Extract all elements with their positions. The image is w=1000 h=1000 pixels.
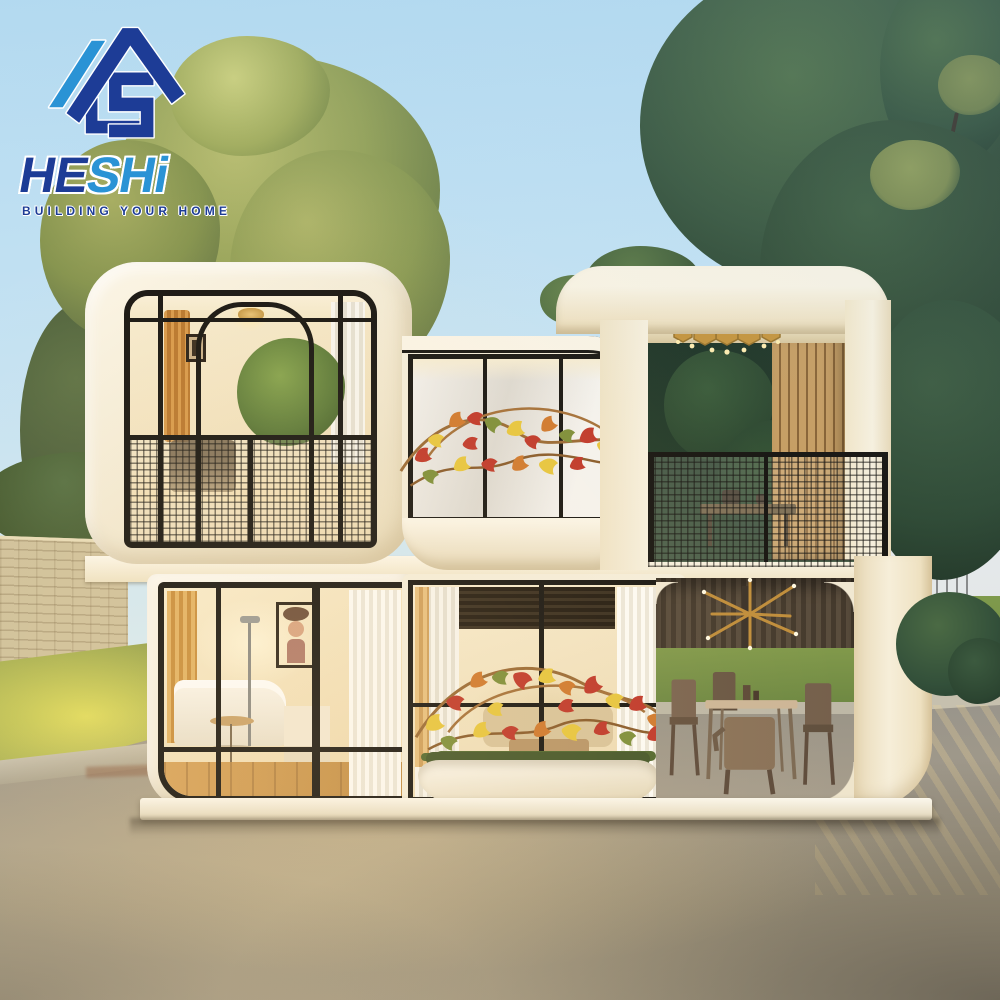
- frame-fillet: [824, 582, 854, 612]
- railing-post: [248, 440, 253, 542]
- portrait-headdress: [283, 607, 309, 621]
- portrait-artwork: [276, 602, 316, 668]
- window-rail: [164, 747, 404, 752]
- sheer-curtain: [349, 590, 401, 798]
- bush-front-right: [948, 638, 1000, 704]
- product-photo: HESHi BUILDING YOUR HOME: [0, 0, 1000, 1000]
- frame-fillet: [814, 762, 854, 802]
- heshi-logo-mark: [28, 8, 192, 140]
- portrait-face: [288, 621, 304, 637]
- window-mullion: [338, 296, 343, 542]
- ground-shadow: [130, 818, 940, 836]
- upper-left-window: [124, 290, 377, 548]
- railing-post: [764, 452, 768, 562]
- frame-fillet: [656, 582, 678, 604]
- logo-tagline: BUILDING YOUR HOME: [22, 204, 231, 218]
- arched-door-frame: [196, 302, 314, 548]
- logo-wordmark-light: SHi: [83, 147, 173, 203]
- logo-letter-s: [109, 73, 153, 138]
- base-platform: [140, 798, 932, 820]
- orange-curtain: [164, 310, 190, 442]
- autumn-vine-lower: [408, 636, 670, 768]
- logo-wordmark: HESHi: [15, 146, 173, 204]
- floor-lamp: [248, 622, 251, 746]
- portrait-figure: [287, 639, 305, 663]
- chair-front: [715, 717, 775, 794]
- bedroom-window: [158, 582, 410, 802]
- heshi-logo: HESHi BUILDING YOUR HOME: [16, 6, 266, 228]
- railing-post: [882, 452, 888, 562]
- logo-wordmark-dark: HE: [15, 147, 92, 203]
- window-mullion: [158, 296, 163, 542]
- window-mullion: [216, 588, 221, 796]
- chair-left: [670, 679, 698, 775]
- terrace-mesh-railing: [648, 452, 888, 567]
- side-table-leg: [230, 724, 232, 766]
- railing-post: [648, 452, 654, 562]
- floor-lamp-head: [240, 616, 260, 623]
- tree-highlight: [938, 55, 1000, 115]
- terrace-left-column: [600, 320, 648, 570]
- door-stile: [312, 588, 320, 796]
- nightstand: [284, 706, 330, 764]
- louver-valance: [443, 587, 615, 629]
- window-transom: [130, 318, 371, 322]
